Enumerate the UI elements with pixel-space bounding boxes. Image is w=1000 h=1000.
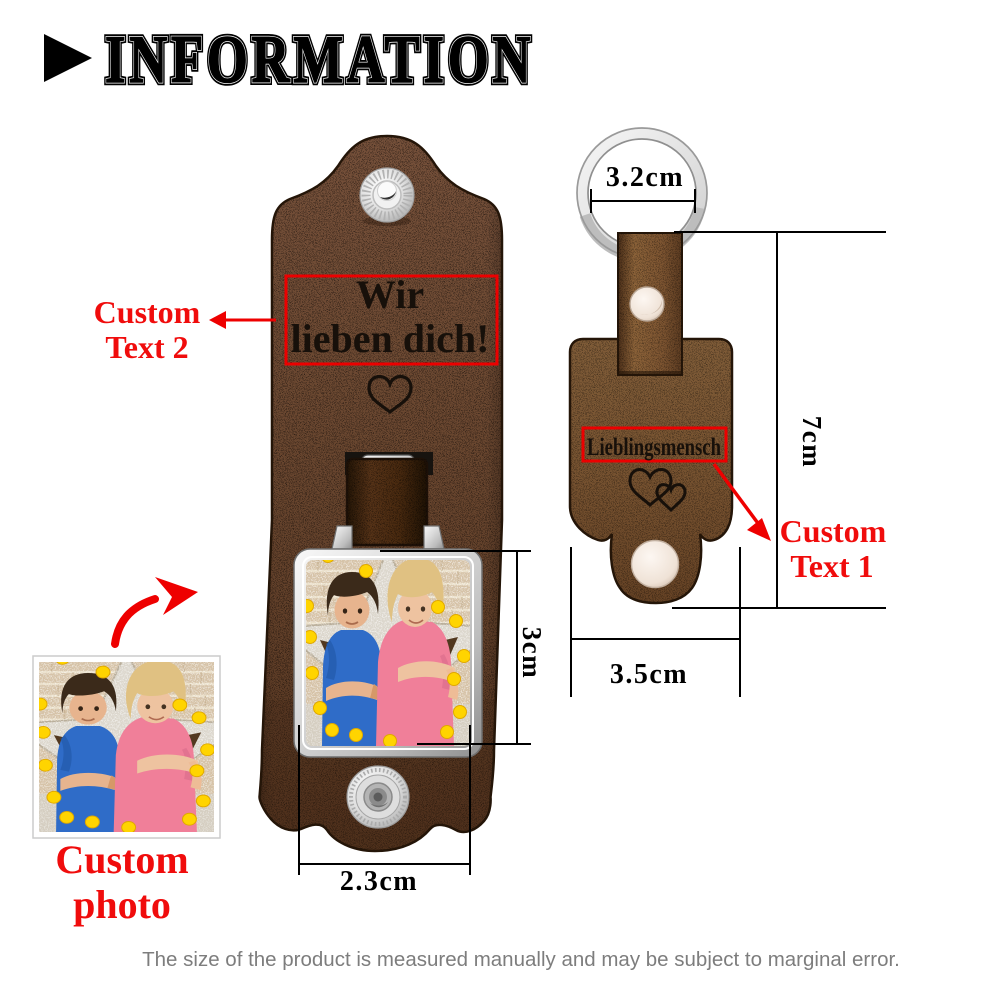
svg-text:3cm: 3cm — [517, 627, 547, 679]
svg-text:photo: photo — [73, 882, 171, 927]
svg-text:7cm: 7cm — [797, 416, 827, 468]
svg-text:3.5cm: 3.5cm — [610, 659, 688, 690]
svg-text:Custom: Custom — [94, 294, 201, 330]
svg-text:INFORMATION: INFORMATION — [105, 23, 534, 98]
svg-text:Custom: Custom — [55, 837, 188, 882]
svg-text:2.3cm: 2.3cm — [340, 866, 418, 897]
svg-text:lieben dich!: lieben dich! — [291, 316, 490, 361]
svg-text:The size of the product is mea: The size of the product is measured manu… — [142, 948, 900, 971]
svg-text:Text 2: Text 2 — [105, 329, 188, 365]
svg-text:Text 1: Text 1 — [790, 548, 873, 584]
svg-text:Custom: Custom — [780, 513, 887, 549]
svg-text:3.2cm: 3.2cm — [606, 162, 684, 193]
svg-text:Wir: Wir — [356, 272, 424, 317]
svg-text:Lieblingsmensch: Lieblingsmensch — [587, 434, 721, 461]
